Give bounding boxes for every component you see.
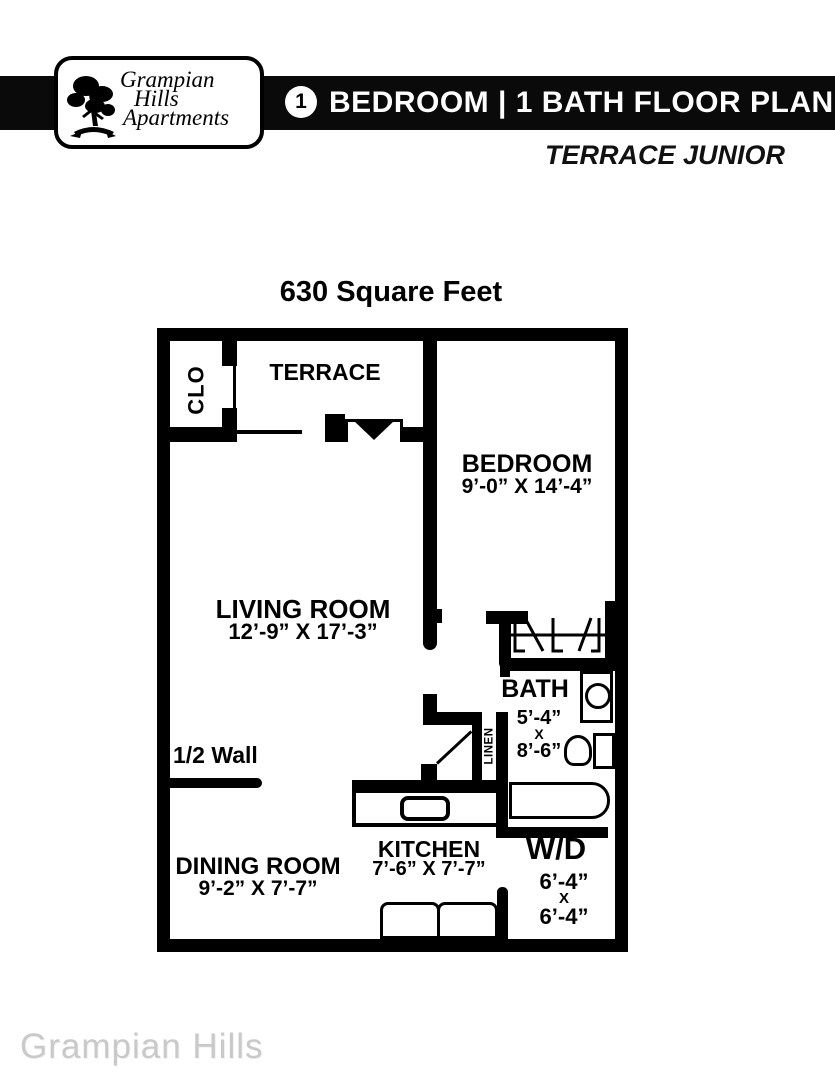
linen-label-box: LINEN: [479, 716, 499, 776]
half-wall-label: 1/2 Wall: [173, 744, 283, 767]
cabinet: [437, 902, 498, 939]
half-wall: [168, 778, 262, 788]
clo-label-box: CLO: [172, 355, 222, 425]
wall-segment: [222, 341, 237, 366]
wall-segment: [222, 408, 237, 428]
wall-segment: [497, 887, 508, 939]
entry-arrow-icon: [353, 420, 395, 440]
clo-label: CLO: [184, 365, 210, 414]
kitchen-label-box: KITCHEN 7’-6” X 7’-7”: [354, 839, 504, 879]
clo-door-line: [233, 366, 236, 408]
terrace-label: TERRACE: [247, 361, 403, 384]
bath-dim-width: 5’-4”: [503, 708, 575, 728]
square-feet-label: 630 Square Feet: [216, 278, 566, 307]
living-room-label: LIVING ROOM: [198, 597, 408, 621]
dining-room-dims: 9’-2” X 7’-7”: [158, 878, 358, 899]
wd-dim-width: 6’-4”: [528, 871, 600, 892]
living-label-box: LIVING ROOM 12’-9” X 17’-3”: [198, 597, 408, 643]
bath-dim-height: 8’-6”: [503, 741, 575, 761]
dining-room-label: DINING ROOM: [158, 856, 358, 878]
bedroom-count-badge: 1: [285, 86, 317, 118]
logo-box: Grampian Hills Apartments: [54, 56, 264, 149]
door-jamb: [437, 609, 442, 623]
toilet-bowl: [585, 683, 611, 709]
sliding-door-line: [237, 430, 302, 434]
bedroom-dims: 9’-0” X 14’-4”: [427, 476, 627, 497]
wall-segment: [157, 427, 237, 442]
bath-dims-box: 5’-4” X 8’-6”: [503, 708, 575, 761]
wall-segment: [500, 658, 615, 671]
wd-dim-height: 6’-4”: [528, 906, 600, 927]
entry-jamb: [345, 419, 348, 442]
page-title: BEDROOM | 1 BATH FLOOR PLAN: [329, 76, 834, 130]
kitchen-sink: [400, 796, 450, 821]
wd-dims-box: 6’-4” X 6’-4”: [528, 871, 600, 927]
bathtub: [509, 782, 610, 819]
bath-vanity: [593, 733, 615, 769]
cabinet: [380, 902, 440, 939]
floor-plan-name: TERRACE JUNIOR: [545, 140, 785, 171]
wall-segment: [325, 414, 345, 442]
living-room-dims: 12’-9” X 17’-3”: [198, 621, 408, 643]
linen-label: LINEN: [483, 728, 495, 765]
watermark: Grampian Hills: [20, 1027, 264, 1067]
wd-label: W/D: [518, 833, 594, 864]
bath-label: BATH: [498, 677, 572, 702]
kitchen-dims: 7’-6” X 7’-7”: [354, 860, 504, 879]
logo-line-3: Apartments: [123, 108, 229, 127]
closet-rod-icon: [509, 615, 605, 655]
wall-segment: [352, 780, 500, 789]
bedroom-label: BEDROOM: [427, 453, 627, 476]
tree-icon: [62, 70, 124, 144]
dining-label-box: DINING ROOM 9’-2” X 7’-7”: [158, 856, 358, 899]
logo-text: Grampian Hills Apartments: [120, 70, 229, 127]
bedroom-label-box: BEDROOM 9’-0” X 14’-4”: [427, 453, 627, 497]
kitchen-label: KITCHEN: [354, 839, 504, 860]
